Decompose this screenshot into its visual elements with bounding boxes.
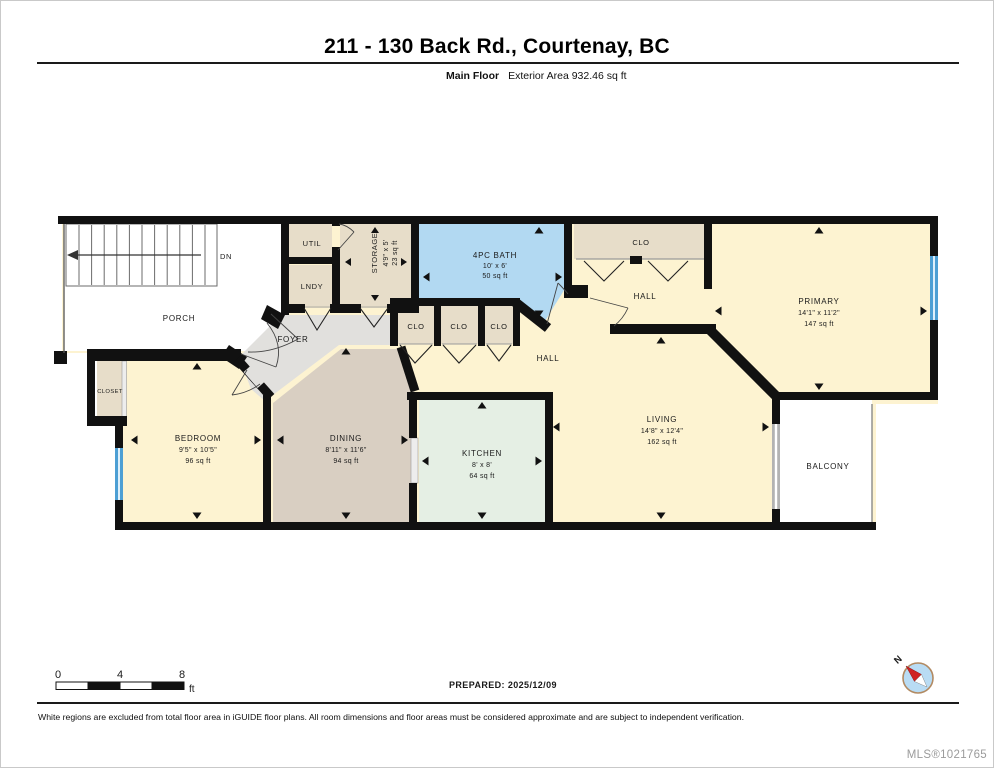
primary-window [930,254,938,322]
scale-tick-4: 4 [117,669,123,681]
dining-label: DINING [330,434,362,443]
storage-label: STORAGE [370,233,379,274]
balcony-label: BALCONY [806,462,849,471]
prepared-date: PREPARED: 2025/12/09 [449,680,557,690]
bath-label: 4PC BATH [473,251,517,260]
mls-number: MLS®1021765 [907,749,987,761]
clo2-label: CLO [450,322,467,331]
foyer-label: FOYER [277,335,308,344]
bedroom-closet-floor [97,357,123,418]
dining-area: 94 sq ft [333,458,358,465]
hall-lower-label: HALL [537,354,560,363]
dining-dims: 8'11" x 11'6" [325,447,366,454]
storage-dims: 4'9" x 5' [383,240,390,267]
lndy-label: LNDY [301,282,323,291]
storage-area: 23 sq ft [392,240,399,265]
hall-closet-label: CLO [632,238,649,247]
stairs [66,224,217,286]
bedroom-window [115,446,123,502]
util-label: UTIL [303,239,322,248]
primary-label: PRIMARY [798,297,839,306]
clo3-label: CLO [490,322,507,331]
scale-bar: 0 4 8 ft [55,669,195,695]
disclaimer-text: White regions are excluded from total fl… [38,712,818,722]
bedroom-area: 96 sq ft [185,458,210,465]
living-dims: 14'8" x 12'4" [641,428,684,435]
closet-label: CLOSET [97,389,123,395]
primary-dims: 14'1" x 11'2" [798,310,840,317]
balcony-slider-door [772,422,780,511]
kitchen-dims: 8' x 8' [472,462,492,469]
bedroom-label: BEDROOM [175,434,221,443]
primary-area: 147 sq ft [804,321,834,328]
floorplan-page: 211 - 130 Back Rd., Courtenay, BC Main F… [0,0,994,768]
balcony-floor [780,400,872,522]
kitchen-label: KITCHEN [462,449,502,458]
kitchen-floor [419,400,545,522]
compass: N [892,654,933,693]
bath-dims: 10' x 6' [483,263,507,270]
scale-tick-0: 0 [55,669,61,681]
kitchen-area: 64 sq ft [469,473,494,480]
bedroom-dims: 9'5" x 10'5" [179,447,217,454]
scale-tick-8: 8 [179,669,185,681]
floorplan-drawing: PORCH DN FOYER UTIL LNDY STORAGE 4'9" x … [1,1,994,768]
living-area: 162 sq ft [647,439,677,446]
bath-area: 50 sq ft [482,273,507,280]
scale-unit: ft [189,684,195,695]
stairs-dn-label: DN [220,252,232,261]
hall-upper-label: HALL [634,292,657,301]
compass-north-label: N [892,654,905,667]
porch-label: PORCH [163,314,195,323]
living-label: LIVING [647,415,677,424]
footer-divider [37,702,959,704]
clo1-label: CLO [407,322,424,331]
